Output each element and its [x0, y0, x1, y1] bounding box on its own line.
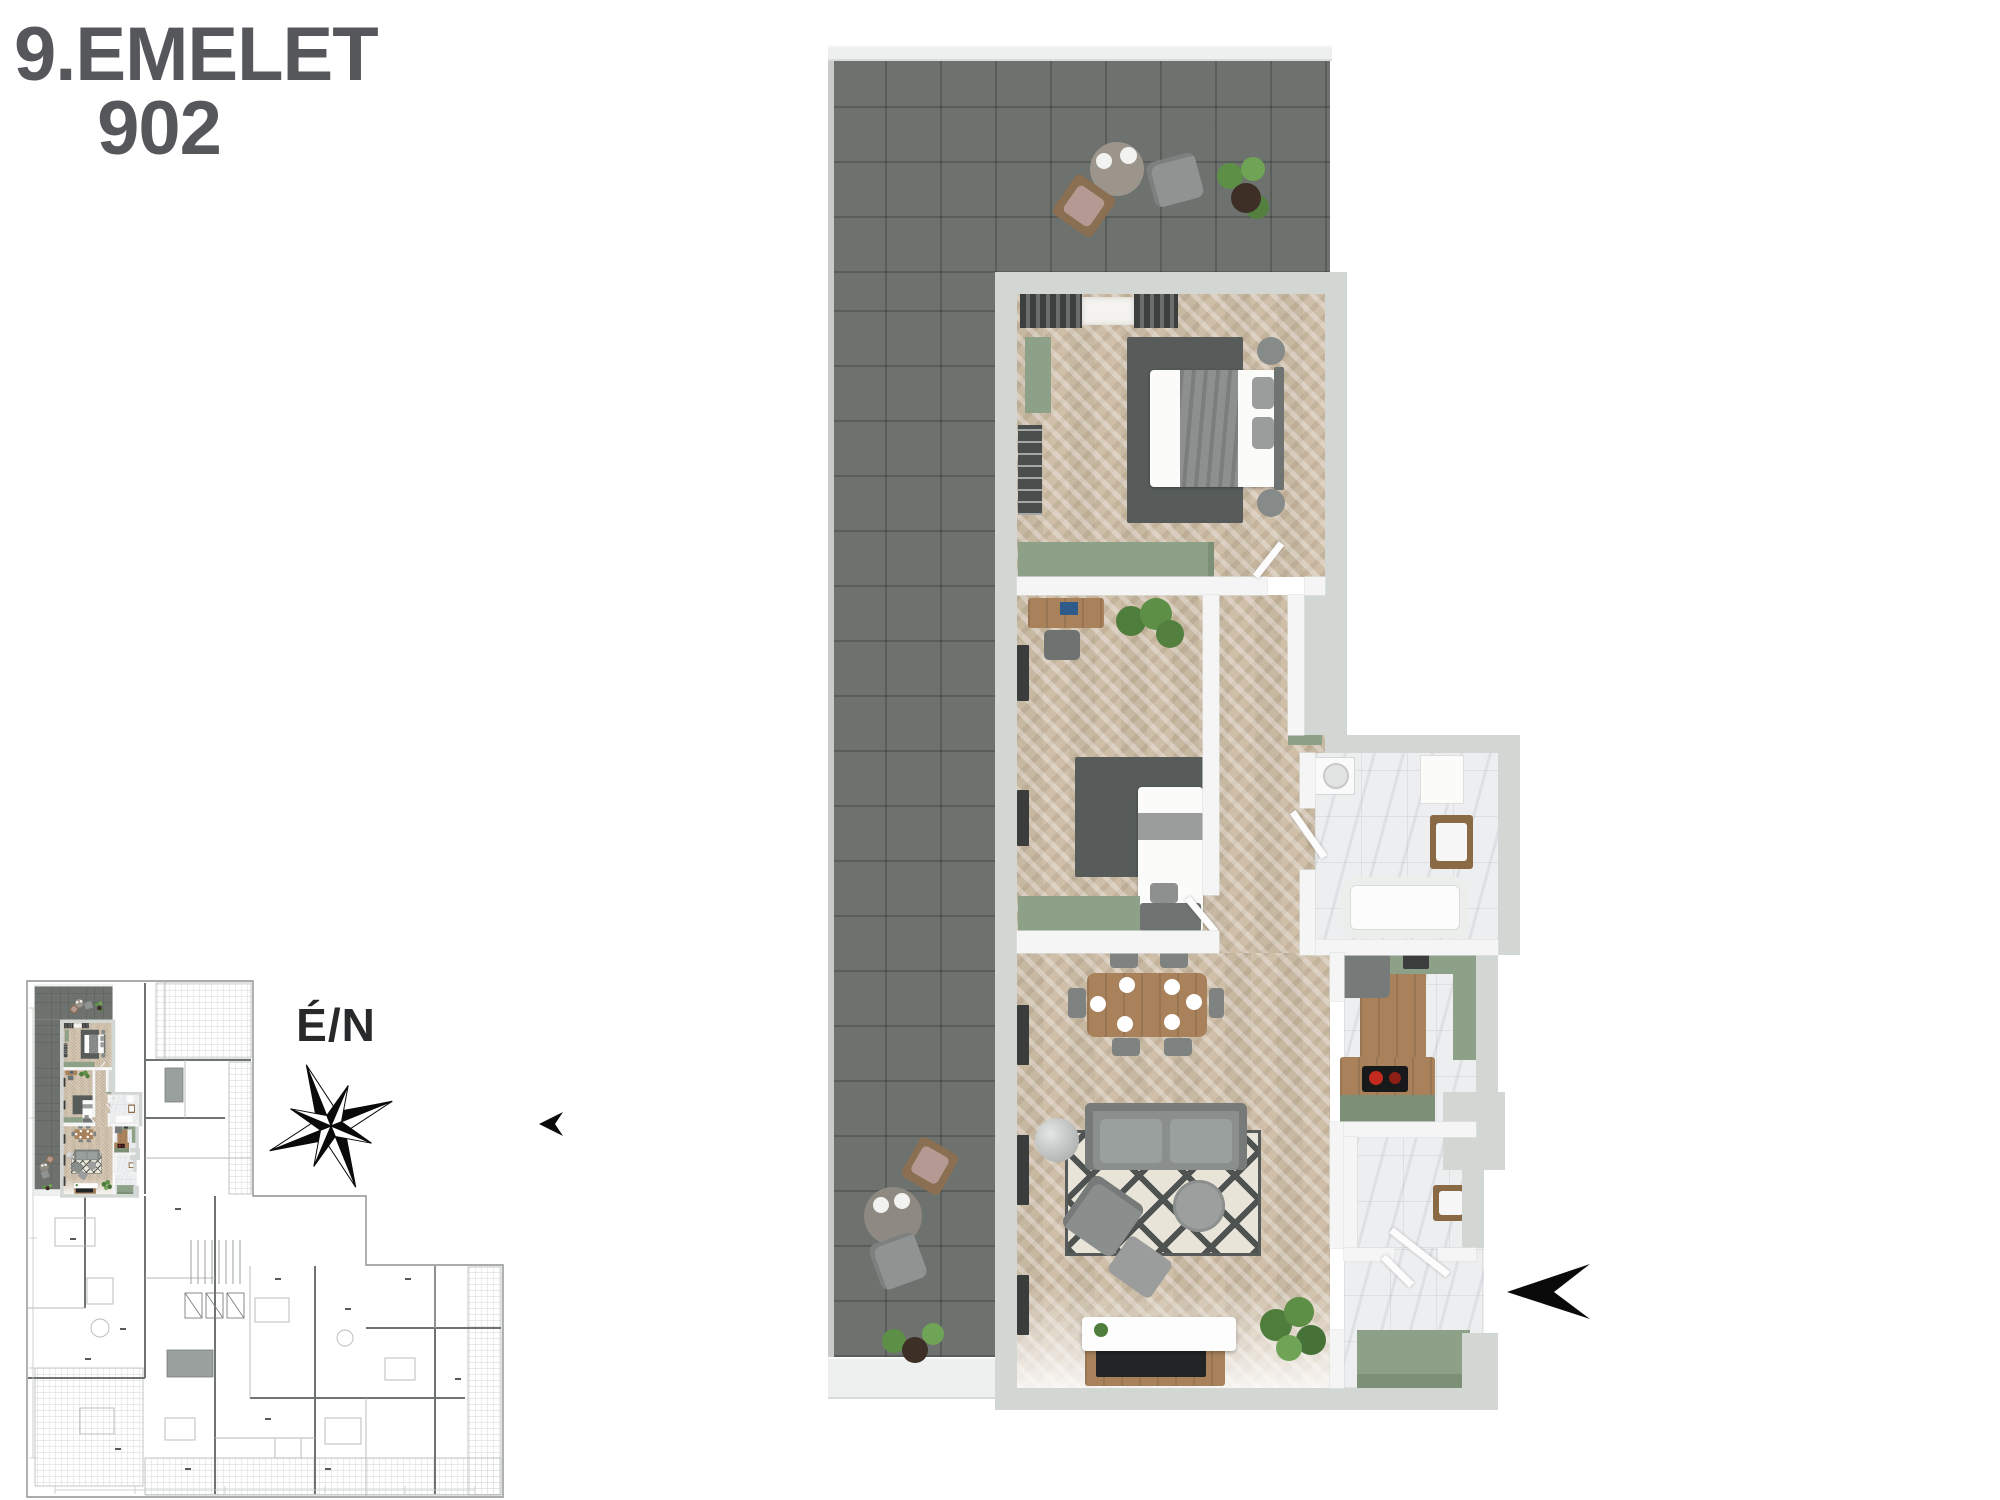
wc-sink: [1439, 1191, 1463, 1215]
plate: [1090, 996, 1106, 1012]
overview-highlight-apartment: [34, 984, 144, 1200]
kitchen-counter-side: [1453, 974, 1476, 1060]
floorplan-sheet: { "title": { "floor_label": "9.EMELET", …: [0, 0, 2000, 1500]
plate: [1164, 1014, 1180, 1030]
coffee-machine: [124, 1126, 128, 1129]
partition-wall: [113, 1185, 115, 1194]
terrace-parapet-top: [828, 45, 1332, 61]
bedroom2-plant: [79, 1071, 90, 1080]
sink-basin: [129, 1106, 134, 1112]
wall: [60, 1194, 139, 1197]
console-plant: [1094, 1323, 1108, 1337]
burner: [119, 1145, 121, 1147]
plate: [1117, 1016, 1133, 1032]
sheer-curtain: [1082, 297, 1134, 325]
window-frame-mark: [1017, 790, 1029, 846]
partition-wall: [1305, 577, 1325, 595]
side-table: [1035, 1118, 1079, 1162]
entry-mat-cabinet: [117, 1185, 135, 1194]
nightstand: [101, 1053, 105, 1057]
partition-wall: [64, 1123, 96, 1126]
partition-wall: [1330, 953, 1344, 1001]
plate: [1119, 977, 1135, 993]
unit-number: 902: [14, 92, 304, 166]
window-frame-mark: [64, 1078, 66, 1087]
coffee-table: [88, 1162, 96, 1170]
washer-door: [111, 1096, 115, 1100]
floor-label: 9.EMELET: [14, 18, 304, 92]
terrace-plant: [95, 1002, 104, 1013]
terrace-cup: [44, 1164, 47, 1167]
partition-wall: [108, 1095, 110, 1104]
nightstand: [1257, 489, 1285, 517]
dining-chair: [1209, 988, 1224, 1018]
coffee-machine: [1403, 953, 1429, 969]
plate: [87, 1136, 90, 1139]
main-floorplan-3d: [34, 984, 142, 1198]
sofa-cushion: [1100, 1119, 1162, 1163]
wall: [139, 1092, 142, 1126]
master-cabinet: [1025, 337, 1051, 413]
burner: [1389, 1072, 1401, 1084]
sink-basin: [1436, 823, 1467, 861]
plate: [75, 1133, 78, 1136]
plate: [87, 1130, 90, 1133]
terrace-cup: [1096, 153, 1112, 169]
wall: [995, 1388, 1498, 1410]
burner: [1369, 1071, 1383, 1085]
terrace-plant-lower: [42, 1184, 53, 1191]
pillow: [1252, 377, 1274, 409]
partition-wall: [129, 1172, 135, 1174]
terrace-plant: [1215, 157, 1271, 229]
dining-chair: [94, 1132, 96, 1137]
partition-wall: [1017, 577, 1267, 595]
wall: [995, 272, 1347, 294]
entrance-arrow-icon: [1498, 1256, 1598, 1328]
bed-blanket: [89, 1035, 98, 1053]
partition-wall: [1203, 595, 1219, 895]
window-frame-mark: [64, 1155, 66, 1166]
wall: [108, 1070, 115, 1092]
wall: [112, 1092, 143, 1095]
partition-wall: [1330, 1122, 1344, 1248]
wall: [133, 1160, 136, 1172]
overview-entrance-arrow-icon: [536, 1108, 566, 1140]
bedroom2-plant: [1116, 598, 1188, 656]
partition-wall: [1438, 1248, 1476, 1261]
wall: [112, 1023, 115, 1070]
kitchen-island-front: [1340, 1095, 1435, 1122]
main-floorplan-3d: [828, 45, 1520, 1410]
bed-blanket: [83, 1104, 93, 1108]
desk-chair: [68, 1076, 74, 1081]
shelf-unit: [1018, 425, 1042, 515]
terrace-cup: [873, 1197, 889, 1213]
dining-chair: [1112, 1038, 1140, 1056]
sofa-cushion: [77, 1152, 87, 1159]
partition-wall: [106, 1070, 109, 1092]
sofa-cushion: [88, 1152, 98, 1159]
partition-wall: [1344, 1137, 1357, 1248]
partition-wall: [93, 1070, 96, 1117]
plate: [1164, 979, 1180, 995]
window-frame-mark: [1017, 1135, 1029, 1205]
terrace-cup: [894, 1193, 910, 1209]
dining-chair: [78, 1139, 82, 1142]
terrace-cup: [1120, 147, 1137, 164]
window-frame-mark: [64, 1101, 66, 1110]
master-wardrobe: [1018, 542, 1214, 577]
partition-wall: [1300, 870, 1315, 955]
terrace-edge: [34, 987, 35, 1190]
curtain: [1134, 294, 1178, 328]
dining-chair: [1068, 988, 1086, 1018]
dining-chair: [72, 1132, 75, 1137]
wall: [1325, 735, 1520, 753]
partition-wall: [1017, 931, 1219, 953]
wall: [1462, 1170, 1484, 1248]
terrace-cup: [76, 1001, 79, 1004]
wall: [995, 272, 1017, 1410]
bed-blanket: [1138, 813, 1203, 840]
wall: [1325, 294, 1347, 595]
plate: [1186, 994, 1202, 1010]
pillow: [1252, 417, 1274, 449]
curtain: [1020, 294, 1082, 328]
master-cabinet: [65, 1030, 69, 1042]
wall: [60, 1020, 115, 1023]
wall: [135, 1124, 138, 1148]
bathtub: [1342, 877, 1468, 938]
laptop: [1060, 602, 1078, 615]
sofa-cushion: [1170, 1119, 1232, 1163]
curtain: [64, 1023, 74, 1028]
nightstand: [101, 1030, 105, 1034]
desk-chair: [1044, 630, 1080, 660]
window-frame-mark: [1017, 1275, 1029, 1335]
dining-chair: [87, 1139, 91, 1142]
partition-wall: [1288, 595, 1304, 735]
headboard: [104, 1034, 106, 1053]
plate: [80, 1130, 83, 1133]
headboard: [1274, 367, 1284, 490]
coffee-table: [1173, 1180, 1225, 1232]
terrace-plant-lower: [882, 1321, 952, 1367]
sheer-curtain: [74, 1023, 82, 1027]
partition-wall: [113, 1126, 115, 1134]
partition-wall: [1330, 1330, 1344, 1388]
washer-door: [1323, 763, 1349, 789]
wall: [1498, 735, 1520, 955]
page-title: 9.EMELET 902: [14, 18, 304, 167]
terrace-cup: [80, 1000, 83, 1003]
partition-wall: [115, 1155, 117, 1172]
console-plant: [76, 1184, 78, 1186]
partition-wall: [64, 1067, 103, 1070]
bed-blanket: [1180, 370, 1238, 487]
nightstand: [1257, 337, 1285, 365]
terrace-edge: [828, 61, 834, 1357]
side-table: [66, 1152, 73, 1159]
bathroom-cabinet: [1420, 755, 1464, 804]
plate: [79, 1136, 82, 1139]
curtain: [82, 1023, 89, 1028]
terrace-cup: [41, 1164, 44, 1167]
window-frame-mark: [1017, 1005, 1029, 1065]
shelf-unit: [64, 1043, 68, 1057]
dining-chair: [1164, 1038, 1192, 1056]
window-frame-mark: [64, 1176, 66, 1185]
pillow: [1150, 883, 1178, 903]
partition-wall: [115, 1153, 136, 1155]
bathtub: [114, 1114, 134, 1124]
partition-wall: [1300, 753, 1315, 808]
partition-wall: [108, 1113, 110, 1126]
entry-mat-cabinet: [1357, 1330, 1470, 1388]
window-frame-mark: [64, 1134, 66, 1143]
living-plant: [101, 1180, 113, 1192]
window-frame-mark: [1017, 645, 1029, 701]
burner: [122, 1145, 124, 1147]
wall: [1304, 595, 1347, 735]
living-plant: [1258, 1295, 1332, 1369]
laptop: [70, 1071, 73, 1073]
partition-wall: [109, 1067, 112, 1070]
wall: [1476, 940, 1498, 1092]
bathroom-cabinet: [127, 1095, 134, 1103]
wall: [60, 1020, 63, 1198]
plate: [90, 1133, 93, 1136]
partition-wall: [1344, 1122, 1476, 1137]
